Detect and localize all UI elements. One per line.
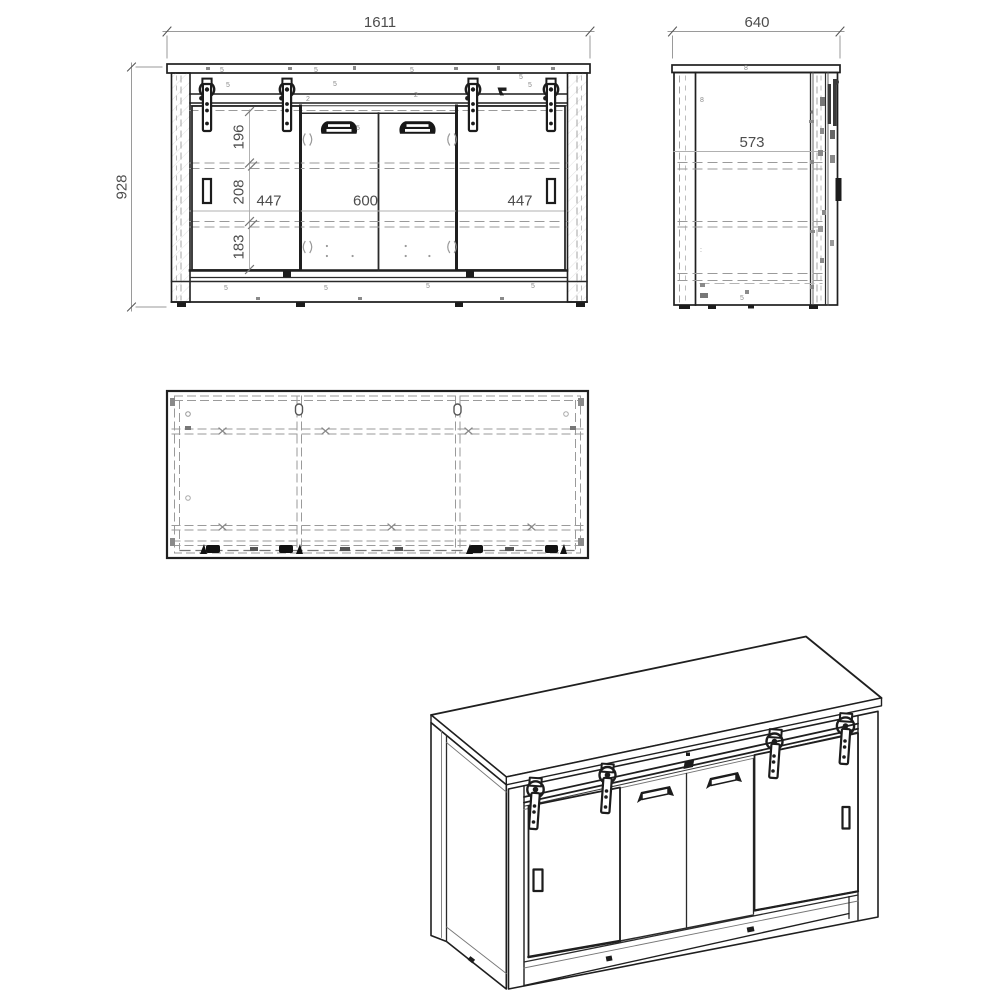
svg-text:447: 447 xyxy=(256,193,281,210)
svg-text:928: 928 xyxy=(114,174,131,199)
svg-text:5: 5 xyxy=(740,295,744,302)
svg-text:8: 8 xyxy=(700,97,704,104)
svg-text:5: 5 xyxy=(324,285,328,292)
svg-text:5: 5 xyxy=(410,67,414,74)
svg-text:5: 5 xyxy=(528,82,532,89)
svg-text:5: 5 xyxy=(314,67,318,74)
svg-text:640: 640 xyxy=(744,14,769,31)
svg-text:5: 5 xyxy=(531,283,535,290)
svg-text:573: 573 xyxy=(739,134,764,151)
svg-text:600: 600 xyxy=(353,193,378,210)
svg-text:5: 5 xyxy=(356,125,360,132)
svg-text:2: 2 xyxy=(306,96,310,103)
svg-text:1611: 1611 xyxy=(364,14,396,31)
svg-text:5: 5 xyxy=(224,285,228,292)
svg-text:5: 5 xyxy=(426,283,430,290)
svg-text::: : xyxy=(700,247,702,254)
svg-text:447: 447 xyxy=(507,193,532,210)
svg-text:5: 5 xyxy=(220,67,224,74)
svg-text:8: 8 xyxy=(744,65,748,72)
svg-text:208: 208 xyxy=(231,179,248,204)
svg-text:183: 183 xyxy=(231,234,248,259)
svg-text:2: 2 xyxy=(414,92,418,99)
svg-text:196: 196 xyxy=(231,124,248,149)
svg-text:5: 5 xyxy=(226,82,230,89)
svg-text:5: 5 xyxy=(333,81,337,88)
svg-text:5: 5 xyxy=(519,74,523,81)
